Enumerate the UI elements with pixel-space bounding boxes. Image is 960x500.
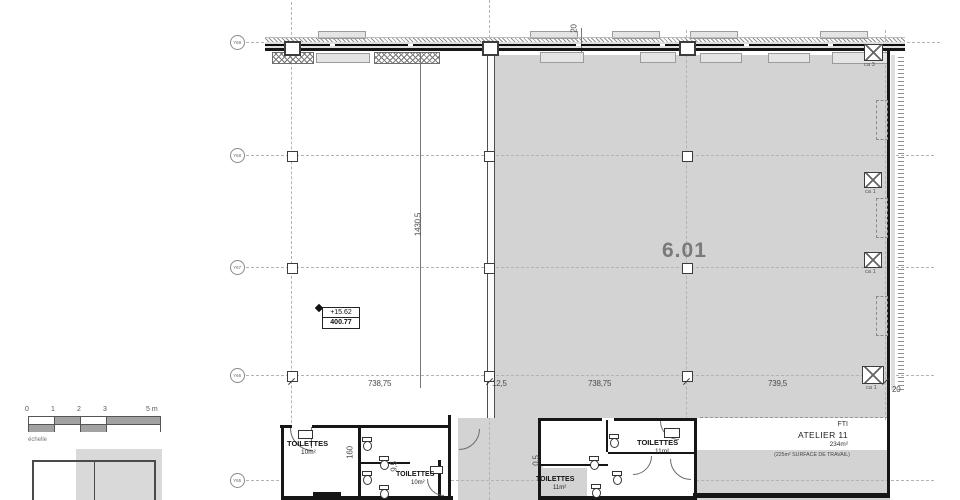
sink-fixture <box>298 430 313 439</box>
column <box>864 172 882 188</box>
gridline-col-1 <box>291 2 292 498</box>
room-area: 10m² <box>411 480 425 486</box>
dim-top-offset: 20 <box>570 21 579 37</box>
hidden-line <box>700 417 888 418</box>
wall <box>448 415 451 500</box>
window-sill <box>540 52 584 63</box>
gridline-row-2 <box>246 155 934 156</box>
elevation-relative: +15.62 <box>323 308 359 318</box>
window-mullion-gap <box>576 44 581 46</box>
dim-right-offset: 20 <box>892 385 901 394</box>
grid-bubble-label: Y66 <box>234 373 242 378</box>
atelier-annotation: FTI ATELIER 11 234m² <box>736 420 848 450</box>
column <box>284 41 301 56</box>
grid-bubble: Y68 <box>230 148 245 163</box>
scalebar-caption: échelle <box>28 437 47 443</box>
wall-niche <box>876 296 888 336</box>
column-tag-label: ca 1 <box>866 384 877 390</box>
sink-fixture <box>664 428 680 438</box>
column-tag: ca 1 <box>866 384 877 390</box>
dim-bay-2: 738,75 <box>588 379 611 388</box>
room-label: TOILETTES <box>396 471 434 478</box>
column <box>682 151 693 162</box>
window-sill <box>316 53 370 63</box>
scalebar-tick: 2 <box>77 406 81 413</box>
window-mullion-gap <box>330 44 335 46</box>
scalebar-seg <box>81 425 107 432</box>
grid-bubble: Y69 <box>230 35 245 50</box>
dim-detail-160: 160 <box>346 443 355 463</box>
column <box>484 263 495 274</box>
wall <box>887 422 890 498</box>
column <box>862 366 884 384</box>
scalebar-tick: 3 <box>103 406 107 413</box>
room-area: 10m² <box>301 449 316 456</box>
column <box>287 151 298 162</box>
window-mullion-gap <box>660 44 665 46</box>
window-sill-hatch <box>374 52 440 64</box>
window-mullion-gap <box>744 44 749 46</box>
column <box>864 252 882 268</box>
wall <box>693 493 890 498</box>
scalebar <box>28 416 161 432</box>
window-mullion-gap <box>828 44 833 46</box>
scalebar-seg <box>55 417 81 424</box>
wall <box>538 418 602 421</box>
wall-niche <box>876 100 888 140</box>
facade-window-frame <box>265 44 905 46</box>
wall <box>694 418 697 500</box>
room-fill-main <box>493 55 888 418</box>
scalebar-row <box>29 424 160 432</box>
wall <box>281 496 453 500</box>
room-number-label: 6.01 <box>662 239 707 263</box>
column <box>484 151 495 162</box>
grid-bubble: Y67 <box>230 260 245 275</box>
toilet-fixture <box>379 485 389 499</box>
column-corner <box>864 44 883 61</box>
toilet-fixture <box>609 434 619 448</box>
toilet-fixture <box>612 471 622 485</box>
toilet-fixture <box>591 484 601 498</box>
window-sill <box>768 53 810 63</box>
wall <box>606 420 608 452</box>
atelier-surface-note: (225m² SURFACE DE TRAVAIL) <box>767 452 857 457</box>
grid-bubble: Y65 <box>230 473 245 488</box>
window-sill <box>700 53 742 63</box>
column-tag: ca 3 <box>864 61 875 67</box>
gridline-row-3 <box>246 267 934 268</box>
gridline-row-4 <box>246 375 934 376</box>
scalebar-seg <box>81 417 107 424</box>
grid-bubble: Y66 <box>230 368 245 383</box>
column <box>287 263 298 274</box>
dim-vertical-total: 1430,5 <box>414 209 423 241</box>
scalebar-tick: 0 <box>25 406 29 413</box>
column <box>482 41 499 56</box>
grid-bubble-label: Y67 <box>234 265 242 270</box>
scalebar-tick: 5 m <box>146 406 158 413</box>
wall <box>312 425 451 428</box>
column <box>679 41 696 56</box>
grid-bubble-label: Y68 <box>234 153 242 158</box>
room-area: 11m² <box>655 448 669 455</box>
scalebar-seg <box>55 425 81 432</box>
elevation-marker: +15.62 400.77 <box>322 307 360 329</box>
wall <box>281 425 284 500</box>
column <box>682 263 693 274</box>
atelier-org: FTI <box>736 420 848 430</box>
grid-bubble-label: Y69 <box>234 40 242 45</box>
scalebar-seg <box>107 425 160 432</box>
keyplan-divider <box>94 460 95 500</box>
wall-niche <box>876 198 888 238</box>
scalebar-tick: 1 <box>51 406 55 413</box>
column-tag-label: ca 3 <box>864 61 875 67</box>
scalebar-row <box>29 417 160 424</box>
scalebar-seg <box>29 417 55 424</box>
scalebar-seg <box>29 425 55 432</box>
dim-detail-0-5: 0,5 <box>532 453 541 469</box>
exterior-wall-north <box>265 48 905 51</box>
toilet-fixture <box>362 437 372 451</box>
dim-wall-gap: 12,5 <box>492 379 507 388</box>
grid-bubble-label: Y65 <box>234 478 242 483</box>
atelier-area: 234m² <box>736 440 848 450</box>
room-label: TOILETTES <box>637 438 678 447</box>
wall <box>614 418 697 421</box>
dim-bay-1: 738,75 <box>368 379 391 388</box>
dim-bay-3: 739,5 <box>768 379 787 388</box>
toilet-fixture <box>379 456 389 470</box>
toilet-fixture <box>589 456 599 470</box>
toilet-fixture <box>362 471 372 485</box>
column-tag-label: ca 1 <box>865 268 876 274</box>
room-area: 11m² <box>553 485 566 491</box>
room-label: TOILETTES <box>536 476 574 483</box>
elevation-absolute: 400.77 <box>323 318 359 328</box>
floor-plan-canvas: Y69 Y68 Y67 Y66 Y65 ca 3 ca 1 ca 1 ca 1 <box>0 0 960 500</box>
facade-glazing-band-east <box>891 55 895 390</box>
room-label: TOILETTES <box>287 439 328 448</box>
column-tag-label: ca 1 <box>865 188 876 194</box>
column-tag: ca 1 <box>865 268 876 274</box>
scalebar-seg <box>107 417 160 424</box>
column-tag: ca 1 <box>865 188 876 194</box>
window-sill <box>640 52 676 63</box>
window-mullion-gap <box>408 44 413 46</box>
atelier-name: ATELIER 11 <box>736 430 848 440</box>
room-fill-pocket-2 <box>543 468 587 498</box>
facade-insulation-hatch-east <box>898 55 904 390</box>
wall <box>538 496 697 500</box>
wall <box>608 452 696 454</box>
partition-wall <box>487 55 495 418</box>
